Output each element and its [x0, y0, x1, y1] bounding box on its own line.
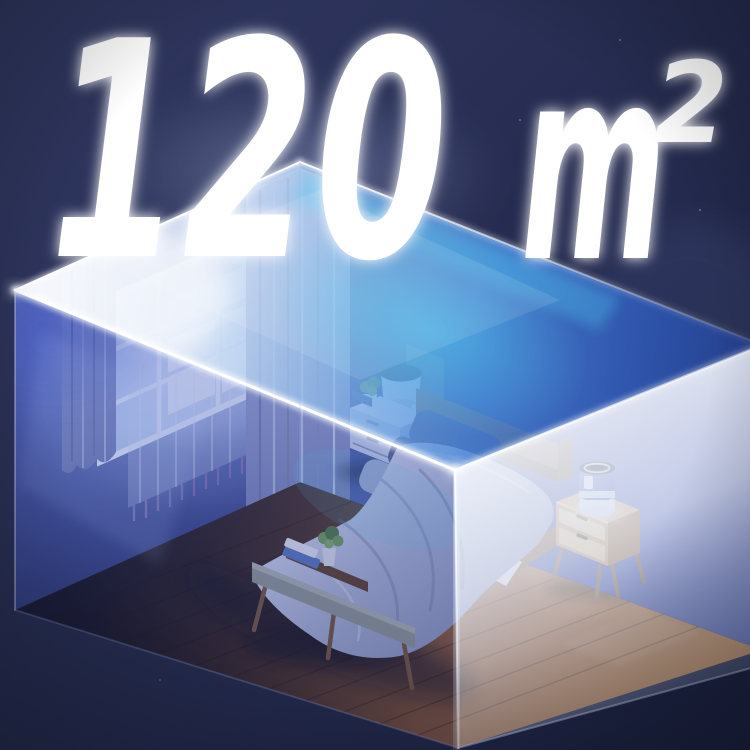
- coverage-area-banner: 120 m 2: [0, 0, 750, 750]
- vignette: [0, 0, 750, 750]
- scene-illustration: 120 m 2: [0, 0, 750, 750]
